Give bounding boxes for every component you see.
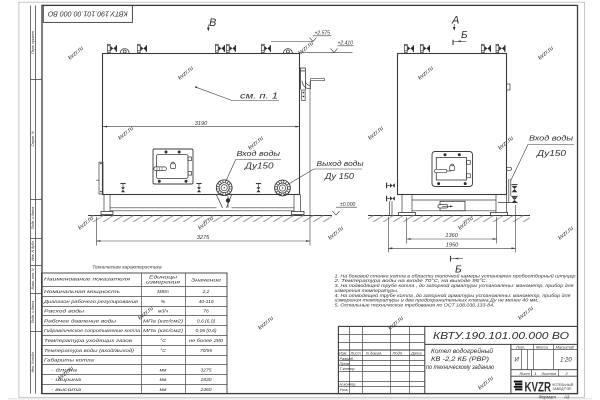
svg-text:1:20: 1:20 [560,358,572,364]
svg-text:Лит.: Лит. [515,345,525,350]
svg-text:КВ -2,2 КБ (РВР): КВ -2,2 КБ (РВР) [431,357,489,363]
svg-text:А3: А3 [563,394,570,399]
svg-text:Подп. и дата: Подп. и дата [31,207,35,230]
svg-text:КВТУ.190.101.00.000 ВО: КВТУ.190.101.00.000 ВО [47,10,128,17]
svg-text:40-110: 40-110 [199,299,214,305]
svg-text:Наименование показателя: Наименование показателя [44,277,131,283]
svg-text:+2.410: +2.410 [338,41,354,47]
svg-text:Масштаб: Масштаб [556,345,575,350]
svg-text:по техническому заданию: по техническому заданию [426,365,494,371]
svg-text:Ду 150: Ду 150 [324,172,355,181]
svg-text:3275: 3275 [201,367,212,373]
svg-text:2,2: 2,2 [202,289,210,295]
svg-text:1950: 1950 [446,243,459,249]
svg-text:Ду150: Ду150 [244,161,274,171]
svg-text:Гидравлическое сопротивление к: Гидравлическое сопротивление котла [44,328,140,334]
svg-text:Вход воды: Вход воды [237,149,281,158]
svg-text:±0.000: ±0.000 [340,202,355,208]
svg-text:Единицы: Единицы [149,274,178,280]
svg-text:А: А [451,15,459,27]
svg-text:В: В [209,17,216,29]
svg-text:Утв.: Утв. [340,387,349,392]
svg-text:Подп. и дата: Подп. и дата [31,301,35,324]
svg-text:0,6 (6,0): 0,6 (6,0) [197,318,216,324]
svg-text:Формат: Формат [539,394,557,399]
svg-text:76: 76 [203,309,209,315]
svg-text:Справ. N: Справ. N [31,131,35,146]
svg-text:Изм.: Изм. [339,350,348,355]
svg-text:5. Остальные технические треб: 5. Остальные технические требования по О… [335,303,495,309]
svg-text:Вход воды: Вход воды [529,134,574,143]
svg-text:Расход воды: Расход воды [44,309,85,315]
svg-text:- длина: - длина [51,367,77,373]
svg-text:Лист: Лист [519,371,531,376]
svg-text:°С: °С [160,338,166,344]
svg-text:м3/ч: м3/ч [158,309,168,315]
svg-text:мм: мм [160,368,167,373]
svg-text:Дата: Дата [410,350,422,355]
svg-text:МВт: МВт [157,289,168,295]
svg-text:Подп.: Подп. [393,350,404,355]
svg-text:70/95: 70/95 [200,348,213,354]
svg-text:Лист: Лист [350,350,362,355]
svg-text:КВТУ.190.101.00.000 ВО: КВТУ.190.101.00.000 ВО [433,330,569,342]
svg-text:1: 1 [535,371,537,376]
svg-text:Б: Б [461,30,468,41]
svg-text:Выход воды: Выход воды [317,160,365,168]
svg-text:Т.контр.: Т.контр. [340,366,356,371]
svg-text:Температура воды (вход/выход): Температура воды (вход/выход) [44,348,134,354]
svg-text:3275: 3275 [197,235,210,241]
svg-text:ЗАВОД РЭП: ЗАВОД РЭП [553,387,572,391]
svg-text:Рабочее давление воды: Рабочее давление воды [44,318,117,324]
svg-text:см. п. 1: см. п. 1 [240,91,278,101]
svg-text:Номинальная мощность: Номинальная мощность [44,289,121,295]
svg-text:мм: мм [160,378,167,383]
svg-text:Котел водогрейный: Котел водогрейный [431,348,494,355]
svg-text:- высота: - высота [51,388,81,393]
svg-text:МПа (кгс/см2): МПа (кгс/см2) [143,318,183,324]
svg-text:Значение: Значение [191,278,221,284]
svg-text:KVZR: KVZR [525,379,552,394]
svg-text:°С: °С [160,348,166,354]
svg-text:Ду150: Ду150 [536,148,567,158]
svg-text:3190: 3190 [195,121,208,127]
svg-text:1830: 1830 [201,377,212,383]
svg-text:МПа (кгс/см2): МПа (кгс/см2) [143,328,183,334]
svg-text:не более 280: не более 280 [189,338,223,344]
svg-text:Перв. примен.: Перв. примен. [31,30,35,54]
svg-text:2460: 2460 [200,387,212,393]
svg-text:Техническая характеристика: Техническая характеристика [92,265,162,271]
svg-text:измерения: измерения [146,281,181,286]
svg-text:+2.575: +2.575 [315,31,331,37]
svg-text:Габариты котла: Габариты котла [44,358,94,364]
svg-text:N докум.: N докум. [366,350,382,355]
svg-text:Температура уходящих газов: Температура уходящих газов [44,338,133,344]
svg-text:0,06 (0,6): 0,06 (0,6) [196,328,217,334]
svg-text:Взам. инв. N: Взам. инв. N [31,268,35,289]
svg-text:Инв. N подл.: Инв. N подл. [31,351,35,372]
svg-text:Листов: Листов [541,371,557,376]
svg-text:И: И [515,358,520,364]
svg-text:1360: 1360 [445,233,458,239]
svg-text:- ширина: - ширина [51,378,81,383]
svg-text:Инв. N дубл: Инв. N дубл [31,241,35,261]
svg-text:Диапазон рабочего регулировани: Диапазон рабочего регулирования [43,299,139,305]
svg-text:Масса: Масса [536,345,549,350]
svg-text:мм: мм [160,388,167,393]
svg-text:%: % [161,299,166,305]
